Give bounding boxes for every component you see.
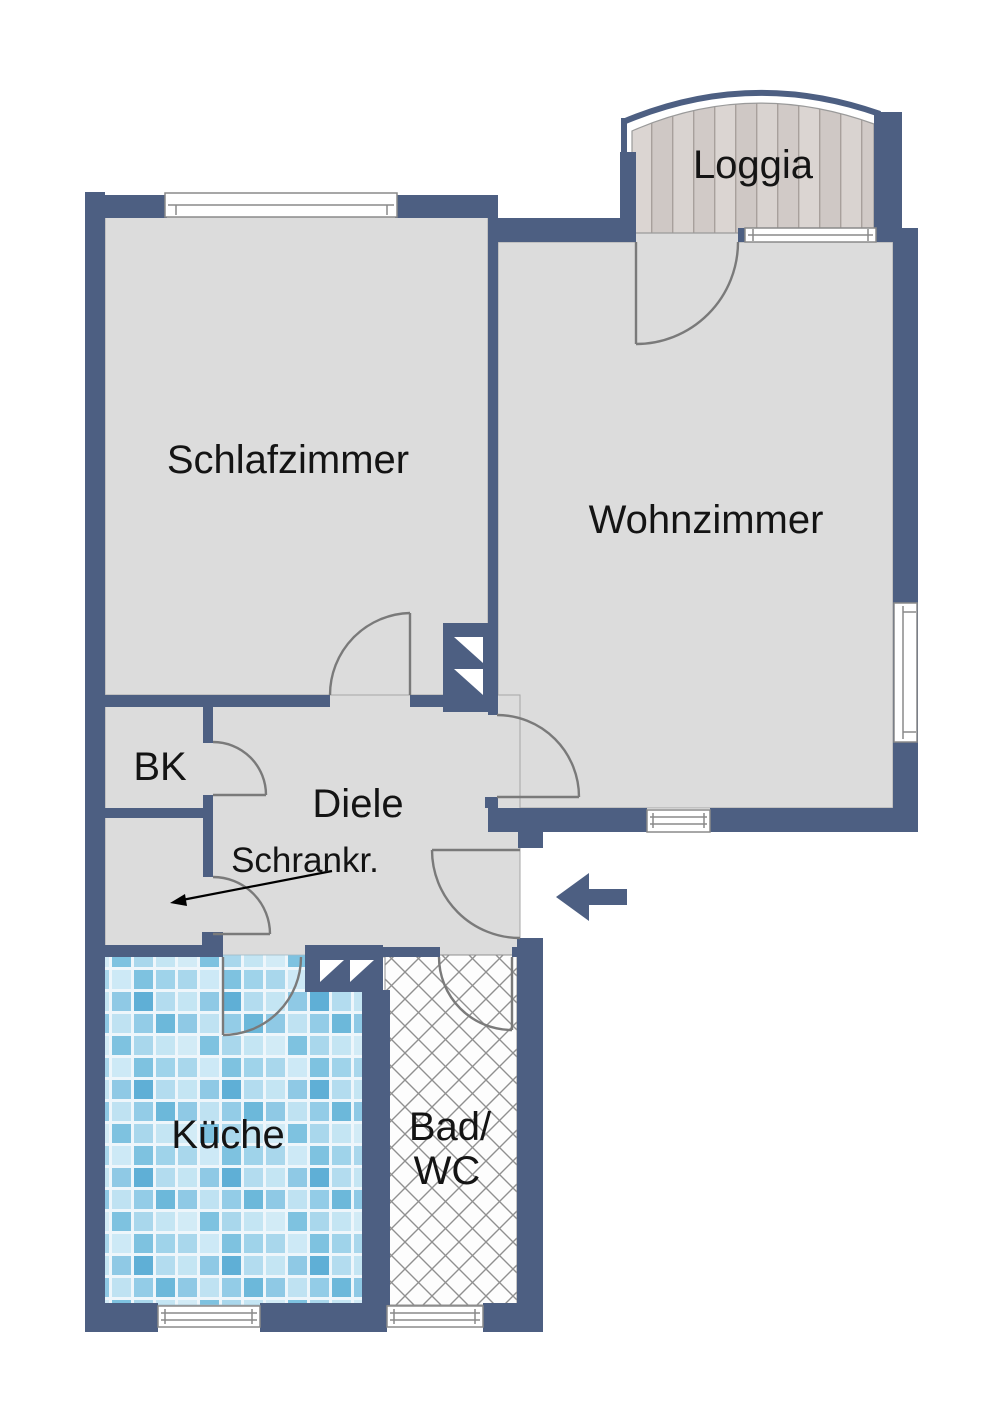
loggia-label: Loggia	[693, 143, 814, 187]
wall-segment	[395, 195, 497, 218]
wall-segment	[517, 938, 543, 1332]
wall-segment	[85, 1303, 158, 1332]
wall-segment	[85, 195, 167, 218]
window-kueche	[158, 1306, 260, 1327]
wall-segment	[485, 797, 498, 808]
bad-label-line2: WC	[414, 1149, 481, 1193]
window-wohnzimmer-bottom	[647, 810, 710, 832]
bad-label-line1: Bad/	[409, 1105, 492, 1149]
window-schlafzimmer	[165, 193, 397, 217]
wall-segment	[710, 808, 918, 832]
wall-segment	[362, 990, 390, 1305]
wall-segment	[85, 808, 213, 818]
floor-plan: Loggia Schlafzimmer Wohnzimmer BK Diele …	[0, 0, 1000, 1415]
wall-segment	[874, 112, 902, 238]
shaft-box-lower	[305, 945, 383, 992]
wall-segment	[203, 707, 213, 743]
wall-segment	[410, 695, 445, 707]
shaft-box-upper	[443, 623, 498, 712]
wall-segment	[85, 695, 330, 707]
loggia-rail-post	[621, 118, 627, 156]
wall-segment	[85, 192, 105, 1332]
kueche-label: Küche	[171, 1113, 284, 1157]
wall-segment	[383, 947, 440, 957]
wall-segment	[483, 1303, 543, 1332]
wohnzimmer-label: Wohnzimmer	[589, 498, 824, 542]
schlafzimmer-label: Schlafzimmer	[167, 438, 409, 482]
wall-segment	[85, 945, 223, 957]
window-wohnzimmer-right	[894, 603, 917, 742]
floor-plan-page: Loggia Schlafzimmer Wohnzimmer BK Diele …	[0, 0, 1000, 1415]
wall-segment	[620, 152, 636, 242]
wall-segment	[488, 808, 647, 832]
diele-label: Diele	[312, 782, 403, 826]
entrance-arrow-icon	[556, 873, 627, 921]
window-bad	[387, 1306, 483, 1327]
wall-segment	[203, 818, 213, 877]
wall-segment	[518, 832, 543, 848]
bk-label: BK	[133, 745, 187, 789]
wall-segment	[260, 1303, 387, 1332]
diele-floor	[105, 695, 520, 957]
wall-segment	[488, 218, 636, 242]
schrankraum-label: Schrankr.	[231, 841, 379, 880]
window-loggia	[745, 228, 876, 242]
wall-segment	[512, 947, 543, 957]
